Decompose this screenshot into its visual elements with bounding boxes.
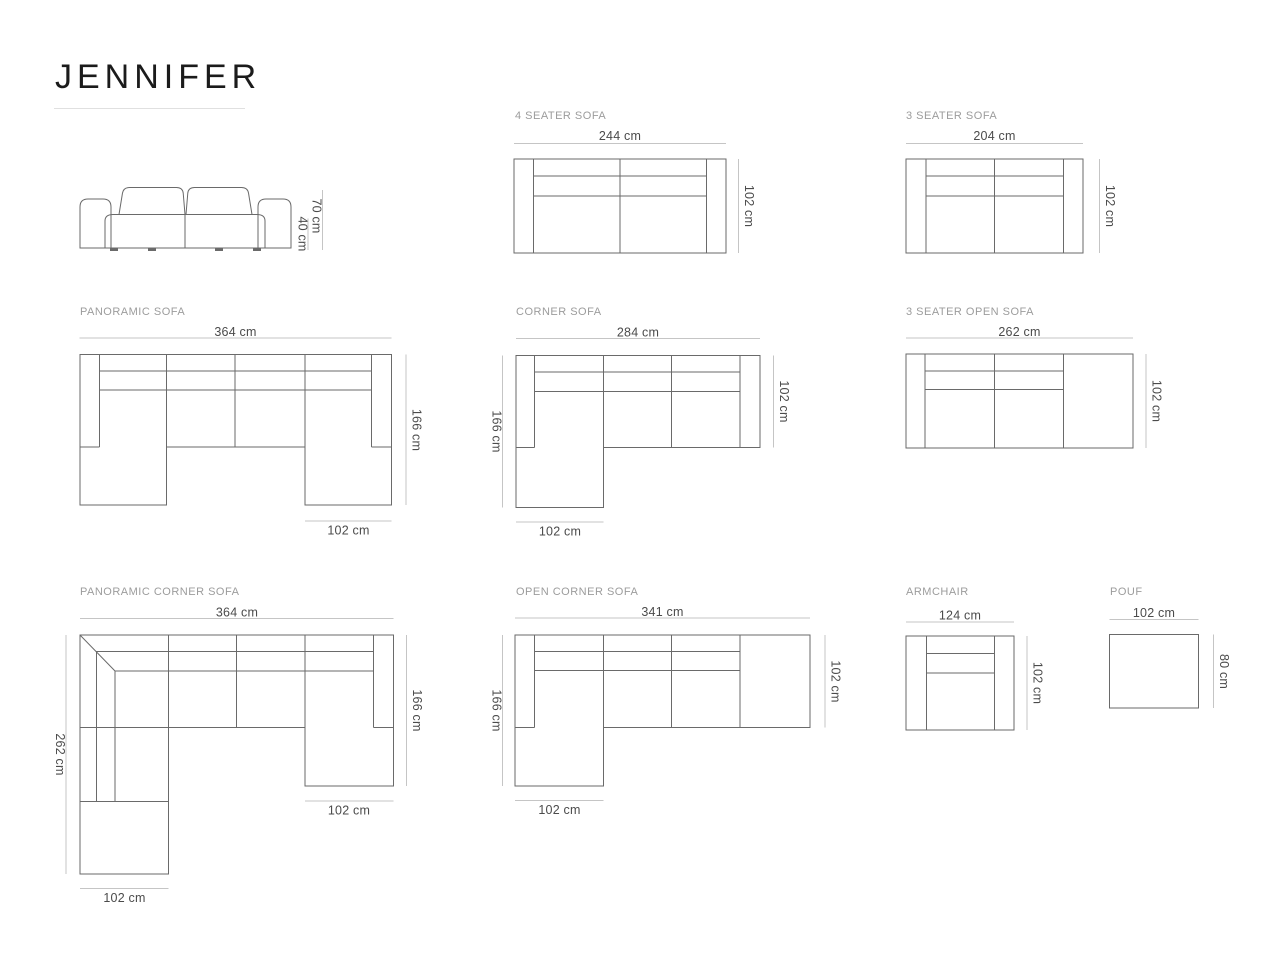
panoramic-outline <box>80 355 392 506</box>
open-corner-backrest-lines <box>535 652 741 671</box>
open-corner-total-depth-value: 166 cm <box>490 689 504 731</box>
corner-label: CORNER SOFA <box>516 306 602 318</box>
panoramic-corner-backrest-lines <box>97 652 374 802</box>
three-seater-open-dividers <box>925 354 1064 448</box>
panoramic-label: PANORAMIC SOFA <box>80 306 185 318</box>
armchair-width-value: 124 cm <box>939 609 981 623</box>
panoramic-corner-label: PANORAMIC CORNER SOFA <box>80 586 240 598</box>
corner-outline <box>516 356 760 508</box>
front-left-cushion <box>119 188 185 215</box>
front-total-height-value: 70 cm <box>310 198 324 233</box>
corner-backrest-lines <box>535 372 741 392</box>
four-seater-width-value: 244 cm <box>599 129 641 143</box>
panoramic-corner-right-chaise-value: 102 cm <box>328 804 370 818</box>
panoramic-corner-left-depth-value: 262 cm <box>53 733 67 775</box>
armchair-backrest-lines <box>927 654 995 674</box>
three-seater-width-value: 204 cm <box>973 129 1015 143</box>
front-seat-height-value: 40 cm <box>296 216 310 251</box>
three-seater-depth-value: 102 cm <box>1103 185 1117 227</box>
corner-width-value: 284 cm <box>617 326 659 340</box>
three-seater-open-outline <box>906 354 1133 448</box>
pouf-outline <box>1110 635 1199 709</box>
open-corner-label: OPEN CORNER SOFA <box>516 586 638 598</box>
pouf-diagram: POUF 102 cm 80 cm <box>1110 586 1232 708</box>
pouf-label: POUF <box>1110 586 1143 598</box>
three-seater-open-width-value: 262 cm <box>998 325 1040 339</box>
panoramic-corner-width-value: 364 cm <box>216 606 258 620</box>
panoramic-depth-value: 166 cm <box>410 409 424 451</box>
corner-sofa-diagram: CORNER SOFA 284 cm 166 cm 102 cm 102 cm <box>490 306 792 539</box>
front-right-cushion <box>186 188 252 215</box>
four-seater-dividers <box>534 159 707 253</box>
front-left-armrest <box>80 199 111 248</box>
panoramic-corner-right-depth-value: 166 cm <box>410 689 424 731</box>
pouf-depth-value: 80 cm <box>1217 654 1231 689</box>
panoramic-sofa-diagram: PANORAMIC SOFA 364 cm 166 cm 102 cm <box>80 306 424 538</box>
corner-total-depth-value: 166 cm <box>490 410 504 452</box>
panoramic-chaise-value: 102 cm <box>327 524 369 538</box>
open-corner-width-value: 341 cm <box>641 605 683 619</box>
panoramic-corner-diagonal-seam <box>80 635 115 671</box>
four-seater-depth-value: 102 cm <box>742 185 756 227</box>
panoramic-width-value: 364 cm <box>214 325 256 339</box>
panoramic-dividers <box>100 355 372 448</box>
open-corner-dividers <box>535 635 741 728</box>
four-seater-label: 4 SEATER SOFA <box>515 110 606 122</box>
armchair-diagram: ARMCHAIR 124 cm 102 cm <box>906 586 1045 730</box>
armchair-label: ARMCHAIR <box>906 586 969 598</box>
panoramic-corner-sofa-diagram: PANORAMIC CORNER SOFA 364 cm 262 cm 166 … <box>53 586 424 905</box>
open-corner-outline <box>515 635 810 786</box>
panoramic-corner-bottom-chaise-value: 102 cm <box>103 891 145 905</box>
dimension-drawings: 70 cm 40 cm 4 SEATER SOFA 244 cm 102 cm … <box>0 0 1280 960</box>
corner-chaise-value: 102 cm <box>539 525 581 539</box>
armchair-depth-value: 102 cm <box>1031 662 1045 704</box>
open-corner-depth-value: 102 cm <box>829 660 843 702</box>
corner-dividers <box>535 356 741 448</box>
front-view-diagram: 70 cm 40 cm <box>80 188 324 252</box>
corner-depth-value: 102 cm <box>777 380 791 422</box>
four-seater-sofa-diagram: 4 SEATER SOFA 244 cm 102 cm <box>514 110 756 253</box>
armchair-outline <box>906 636 1014 730</box>
open-corner-sofa-diagram: OPEN CORNER SOFA 341 cm 166 cm 102 cm 10… <box>490 586 843 817</box>
three-seater-dividers <box>926 159 1064 253</box>
three-seater-open-label: 3 SEATER OPEN SOFA <box>906 306 1034 318</box>
three-seater-open-depth-value: 102 cm <box>1150 380 1164 422</box>
three-seater-open-sofa-diagram: 3 SEATER OPEN SOFA 262 cm 102 cm <box>906 306 1164 448</box>
size-guide-page: JENNIFER 70 cm 40 cm 4 SEATER SOFA 244 c… <box>0 0 1280 960</box>
front-right-armrest <box>258 199 291 248</box>
pouf-width-value: 102 cm <box>1133 606 1175 620</box>
three-seater-label: 3 SEATER SOFA <box>906 110 997 122</box>
open-corner-chaise-value: 102 cm <box>538 803 580 817</box>
armchair-dividers <box>927 636 995 730</box>
three-seater-sofa-diagram: 3 SEATER SOFA 204 cm 102 cm <box>906 110 1117 253</box>
